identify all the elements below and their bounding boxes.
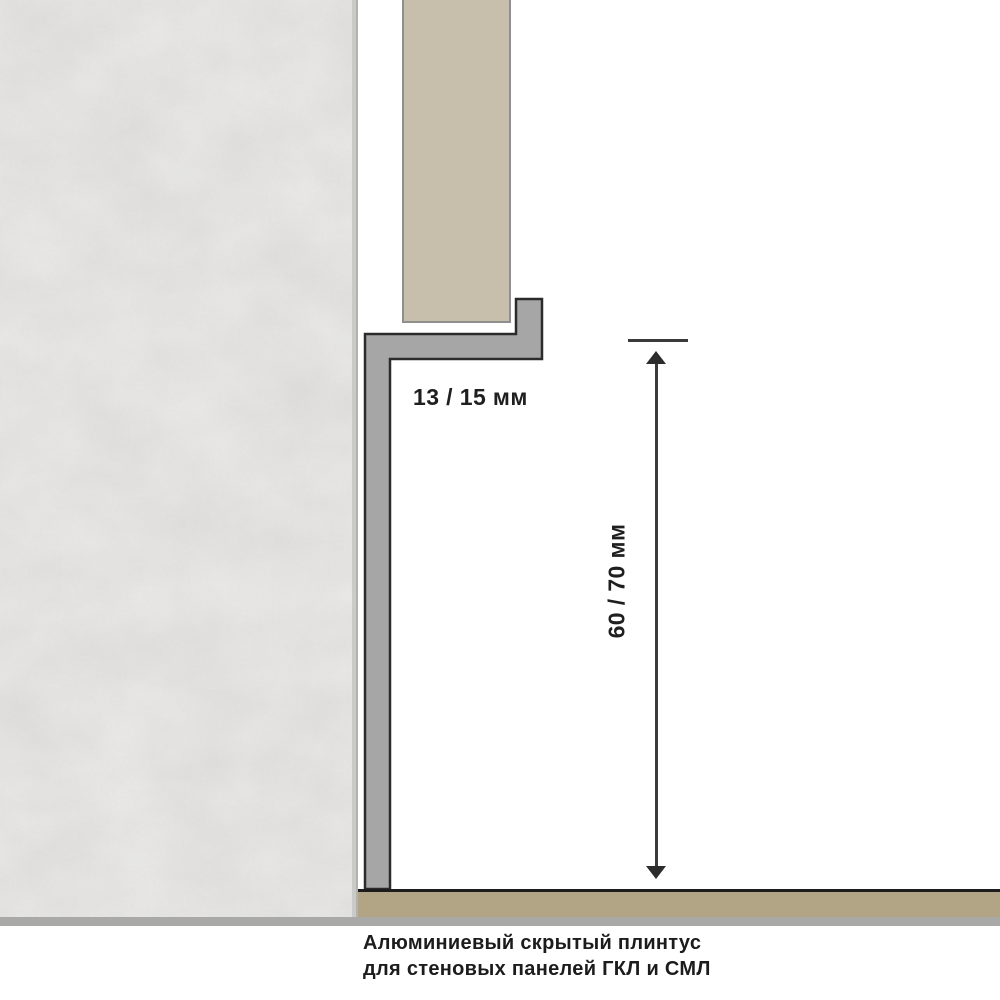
caption: Алюминиевый скрытый плинтус для стеновых… xyxy=(363,930,711,982)
base-strip xyxy=(0,917,1000,926)
floor-strip xyxy=(358,889,1000,918)
arrow-down-icon xyxy=(646,866,666,879)
aluminium-plinth-profile xyxy=(355,290,555,900)
wall-panel-texture xyxy=(402,0,511,323)
height-dimension-label: 60 / 70 мм xyxy=(604,524,631,639)
plinth-section-diagram: 13 / 15 мм 60 / 70 мм Алюминиевый скрыты… xyxy=(0,0,1000,1000)
dimension-top-tick xyxy=(628,339,688,342)
concrete-wall xyxy=(0,0,358,917)
wall-panel xyxy=(402,0,511,323)
concrete-wall-texture xyxy=(0,0,358,917)
depth-dimension-label: 13 / 15 мм xyxy=(413,384,528,411)
dimension-line xyxy=(655,357,658,871)
caption-line-1: Алюминиевый скрытый плинтус xyxy=(363,930,711,956)
caption-line-2: для стеновых панелей ГКЛ и СМЛ xyxy=(363,956,711,982)
arrow-up-icon xyxy=(646,351,666,364)
profile-shape xyxy=(355,290,555,900)
